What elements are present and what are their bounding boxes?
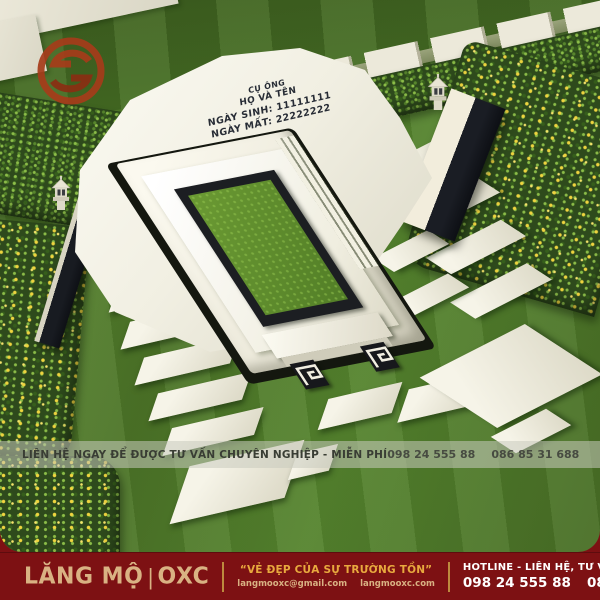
brand-separator: | xyxy=(147,564,154,589)
tomb-3d-render: CỤ ÔNG HỌ VÀ TÊN NGÀY SINH: 11111111 NGÀ… xyxy=(0,0,600,552)
brand-suffix: OXC xyxy=(158,563,210,589)
contact-banner: LIÊN HỆ NGAY ĐỂ ĐƯỢC TƯ VẤN CHUYÊN NGHIỆ… xyxy=(0,441,600,468)
brand-logo: LĂNG MỘ | OXC xyxy=(24,563,209,589)
greek-key-leg-icon xyxy=(360,342,400,372)
stone-lantern-icon xyxy=(426,74,450,110)
footer-divider xyxy=(448,562,450,592)
stepping-stone xyxy=(318,382,403,430)
hotline-phone-1: 098 24 555 88 xyxy=(463,575,571,591)
greek-key-leg-icon xyxy=(290,360,330,390)
banner-phone-2: 086 85 31 688 xyxy=(491,448,579,461)
brand-tagline: “VẺ ĐẸP CỦA SỰ TRƯỜNG TỒN” xyxy=(237,564,435,576)
brand-name: LĂNG MỘ xyxy=(24,563,143,589)
tomb-advertisement-poster: CỤ ÔNG HỌ VÀ TÊN NGÀY SINH: 11111111 NGÀ… xyxy=(0,0,600,600)
flower-hedge xyxy=(0,456,120,552)
email-address: langmooxc@gmail.com xyxy=(237,579,347,589)
footer-slogan-block: “VẺ ĐẸP CỦA SỰ TRƯỜNG TỒN” langmooxc@gma… xyxy=(237,564,435,589)
banner-phone-1: 098 24 555 88 xyxy=(387,448,475,461)
hotline-phone-2: 086 85 31 688 xyxy=(587,575,600,591)
footer-divider xyxy=(222,562,224,592)
footer-hotline-block: HOTLINE - LIÊN HỆ, TƯ VẤN MIỄN PHÍ 098 2… xyxy=(463,562,600,591)
oxc-logo-icon xyxy=(34,34,108,108)
website-address: langmooxc.com xyxy=(360,579,435,589)
hotline-label: HOTLINE - LIÊN HỆ, TƯ VẤN MIỄN PHÍ xyxy=(463,562,600,573)
stepping-stone xyxy=(420,324,600,428)
stone-lantern-icon xyxy=(50,176,72,210)
footer-bar: LĂNG MỘ | OXC “VẺ ĐẸP CỦA SỰ TRƯỜNG TỒN”… xyxy=(0,552,600,600)
banner-message: LIÊN HỆ NGAY ĐỂ ĐƯỢC TƯ VẤN CHUYÊN NGHIỆ… xyxy=(22,449,387,461)
